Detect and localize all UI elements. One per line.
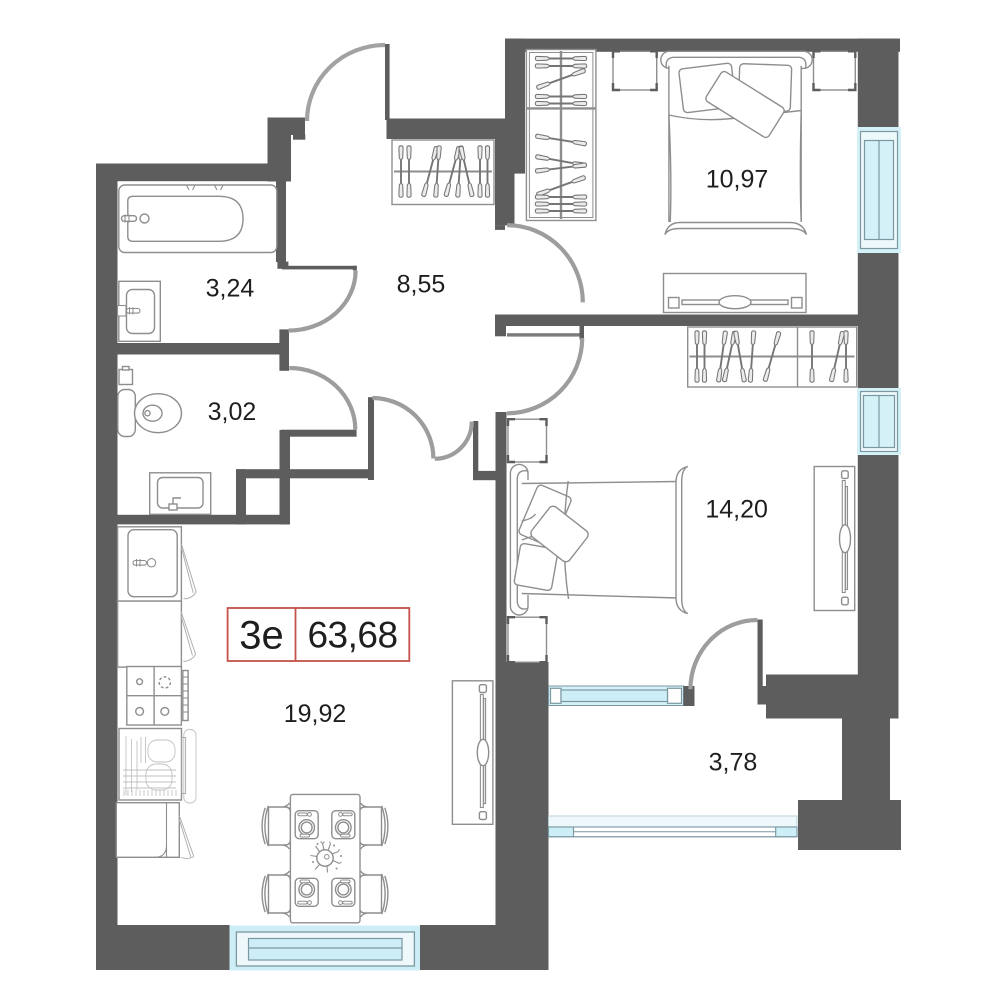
svg-text:3,02: 3,02 [208, 398, 257, 426]
svg-text:3,24: 3,24 [206, 275, 255, 303]
svg-text:3е: 3е [239, 614, 284, 658]
svg-text:10,97: 10,97 [706, 166, 769, 194]
svg-text:63,68: 63,68 [307, 615, 397, 656]
svg-text:8,55: 8,55 [397, 271, 446, 299]
svg-text:14,20: 14,20 [705, 496, 768, 524]
svg-text:19,92: 19,92 [284, 700, 347, 728]
svg-text:3,78: 3,78 [709, 749, 758, 777]
